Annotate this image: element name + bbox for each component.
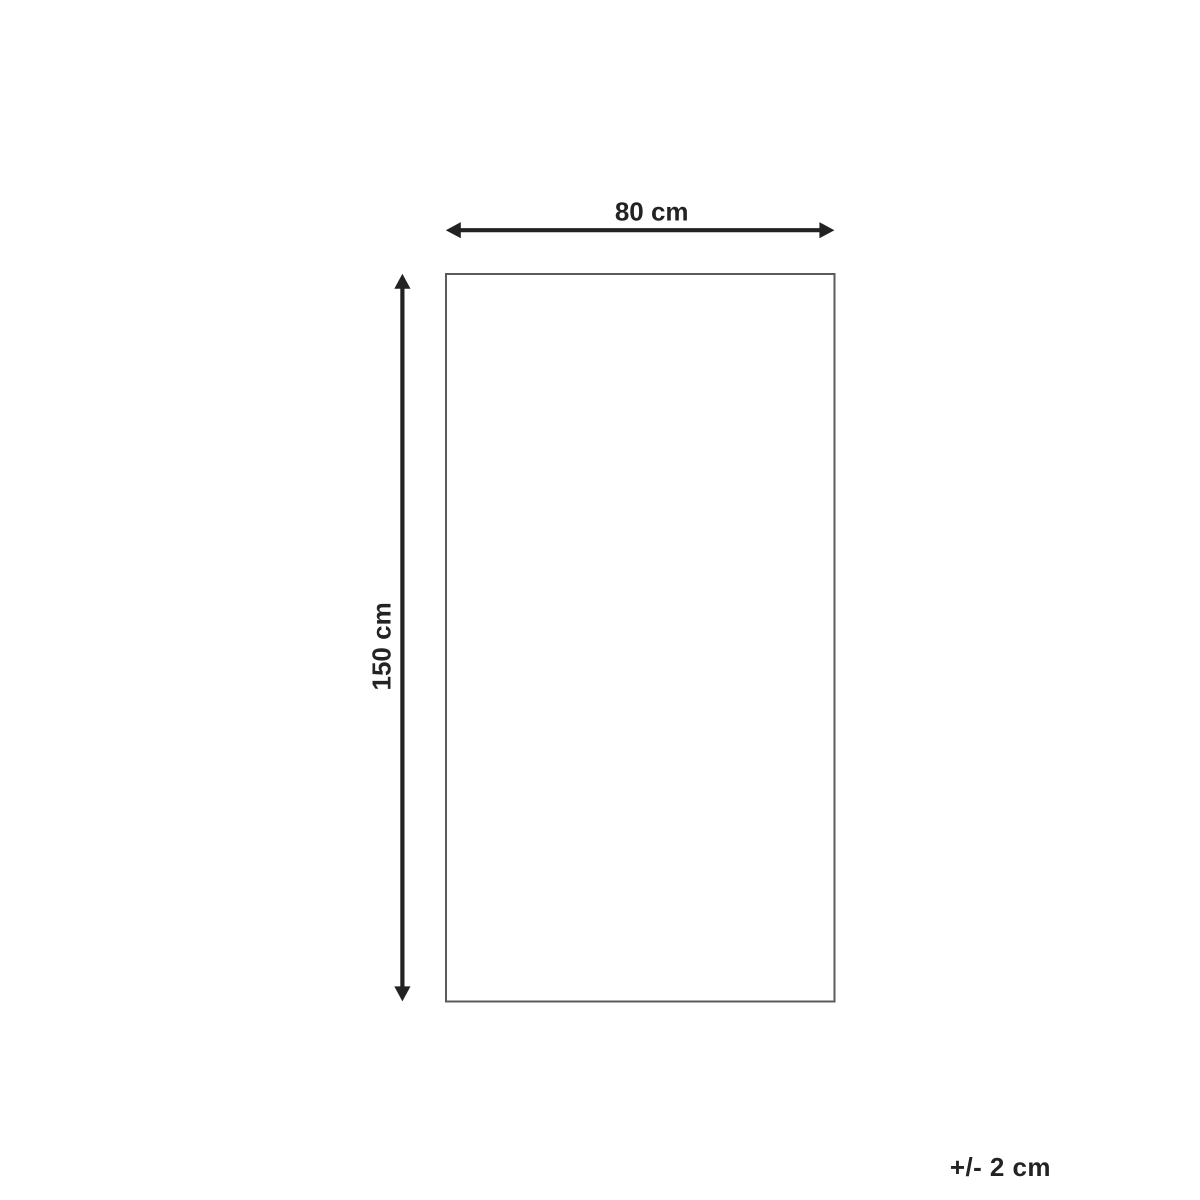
svg-text:150 cm: 150 cm xyxy=(367,602,397,690)
svg-text:+/- 2 cm: +/- 2 cm xyxy=(950,1152,1051,1182)
svg-text:80 cm: 80 cm xyxy=(615,197,689,227)
